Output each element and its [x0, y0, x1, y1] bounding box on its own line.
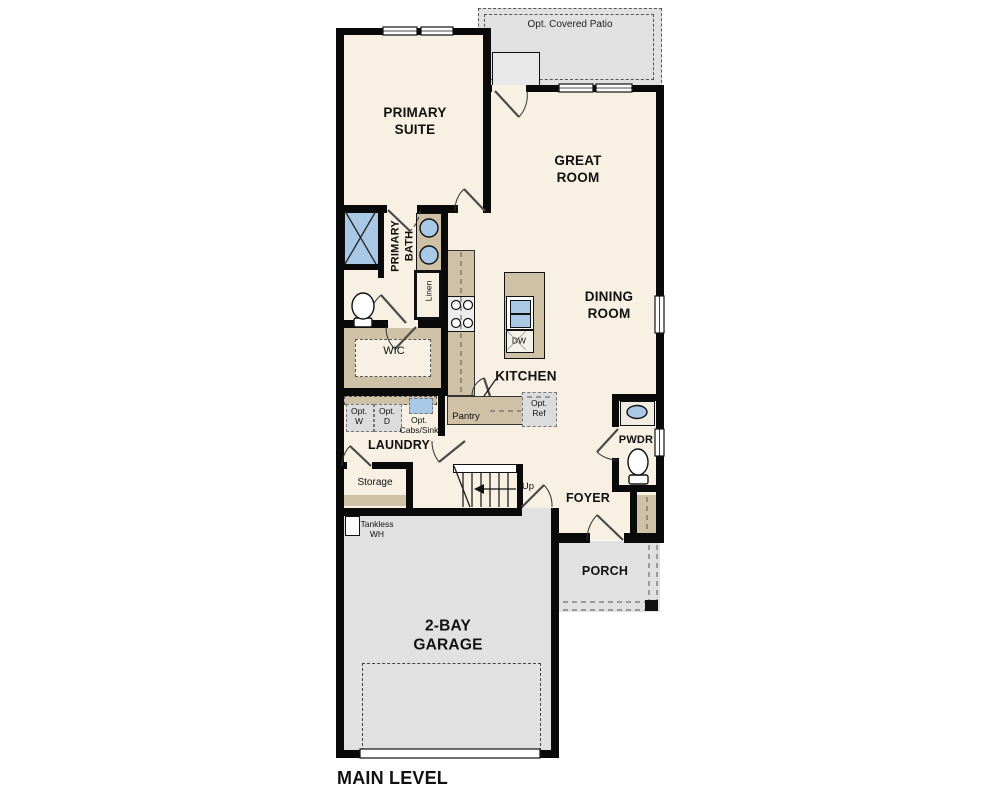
island-sink-basin-top	[510, 300, 531, 314]
patio-label: Opt. Covered Patio	[527, 19, 612, 32]
wall-shower-right	[378, 209, 384, 266]
primary-suite-label: PRIMARY SUITE	[383, 105, 446, 139]
wall-garage-bottom-a	[336, 750, 362, 758]
foyer-label: FOYER	[566, 491, 610, 507]
wall-wic-bottom	[336, 388, 446, 396]
wall-pwdr-left-a	[612, 394, 619, 427]
island-sink-basin-bottom	[510, 314, 531, 328]
dining-room-label: DINING ROOM	[585, 289, 633, 323]
opt-washer-label: Opt. W	[351, 407, 367, 427]
wall-suite-top	[336, 28, 491, 35]
wall-wic-top-a	[336, 320, 388, 328]
linen-label: Linen	[424, 281, 435, 302]
storage-shelf	[344, 495, 408, 506]
wall-storage-top-a	[336, 462, 347, 469]
floor-plan-main-level: Opt. Covered Patio PRIMARY SUITE GREAT R…	[0, 0, 1000, 800]
wic-label: WIC	[383, 345, 404, 359]
wall-garage-right	[551, 508, 559, 758]
dishwasher-label: DW	[512, 336, 526, 347]
wall-exterior-right	[656, 85, 664, 540]
wall-hall-left	[438, 388, 445, 436]
opt-cabs-sink-label: Opt. Cabs/Sink	[400, 415, 439, 435]
wall-suite-right	[483, 28, 491, 213]
opt-ref-label: Opt. Ref	[531, 399, 547, 419]
wall-porch-top-a	[555, 533, 590, 543]
great-room-label: GREAT ROOM	[554, 153, 601, 187]
wall-wic-top-b	[418, 320, 441, 328]
wall-toilet-nook-stub	[378, 264, 384, 278]
garage-label: 2-BAY GARAGE	[413, 617, 482, 656]
opt-dryer-label: Opt. D	[379, 407, 395, 427]
primary-bath-label: PRIMARY BATH	[389, 220, 417, 272]
pwdr-vanity	[620, 401, 655, 426]
wall-garage-bottom-b	[538, 750, 559, 758]
wall-greatroom-top-b	[526, 85, 664, 92]
pwdr-label: PWDR	[619, 434, 653, 448]
garage-door-dashed-outline	[362, 663, 541, 751]
laundry-label: LAUNDRY	[368, 438, 430, 454]
patio-landing-step	[492, 52, 540, 88]
wall-bath-kitchen-divider	[441, 205, 448, 396]
pantry-label: Pantry	[452, 411, 479, 423]
plan-title: MAIN LEVEL	[337, 767, 448, 790]
bath-vanity	[416, 213, 443, 272]
wall-closet-left	[630, 492, 637, 537]
storage-label: Storage	[357, 477, 392, 490]
stairs-up-label: Up	[522, 481, 534, 493]
wall-suite-bottom-b	[417, 205, 458, 213]
stair-header	[453, 464, 517, 473]
wall-greatroom-top-a	[483, 85, 492, 92]
range-stove	[447, 296, 475, 332]
wall-pwdr-bottom	[612, 485, 658, 492]
coat-closet	[637, 495, 657, 535]
tankless-wh-label: Tankless WH	[360, 519, 393, 539]
wall-garage-top	[336, 508, 522, 516]
wall-below-shower	[336, 264, 384, 270]
opt-cabs-sink-fixture	[409, 398, 433, 414]
shower	[343, 209, 382, 270]
kitchen-label: KITCHEN	[495, 369, 556, 386]
tankless-water-heater	[345, 516, 360, 536]
porch-label: PORCH	[582, 564, 628, 580]
